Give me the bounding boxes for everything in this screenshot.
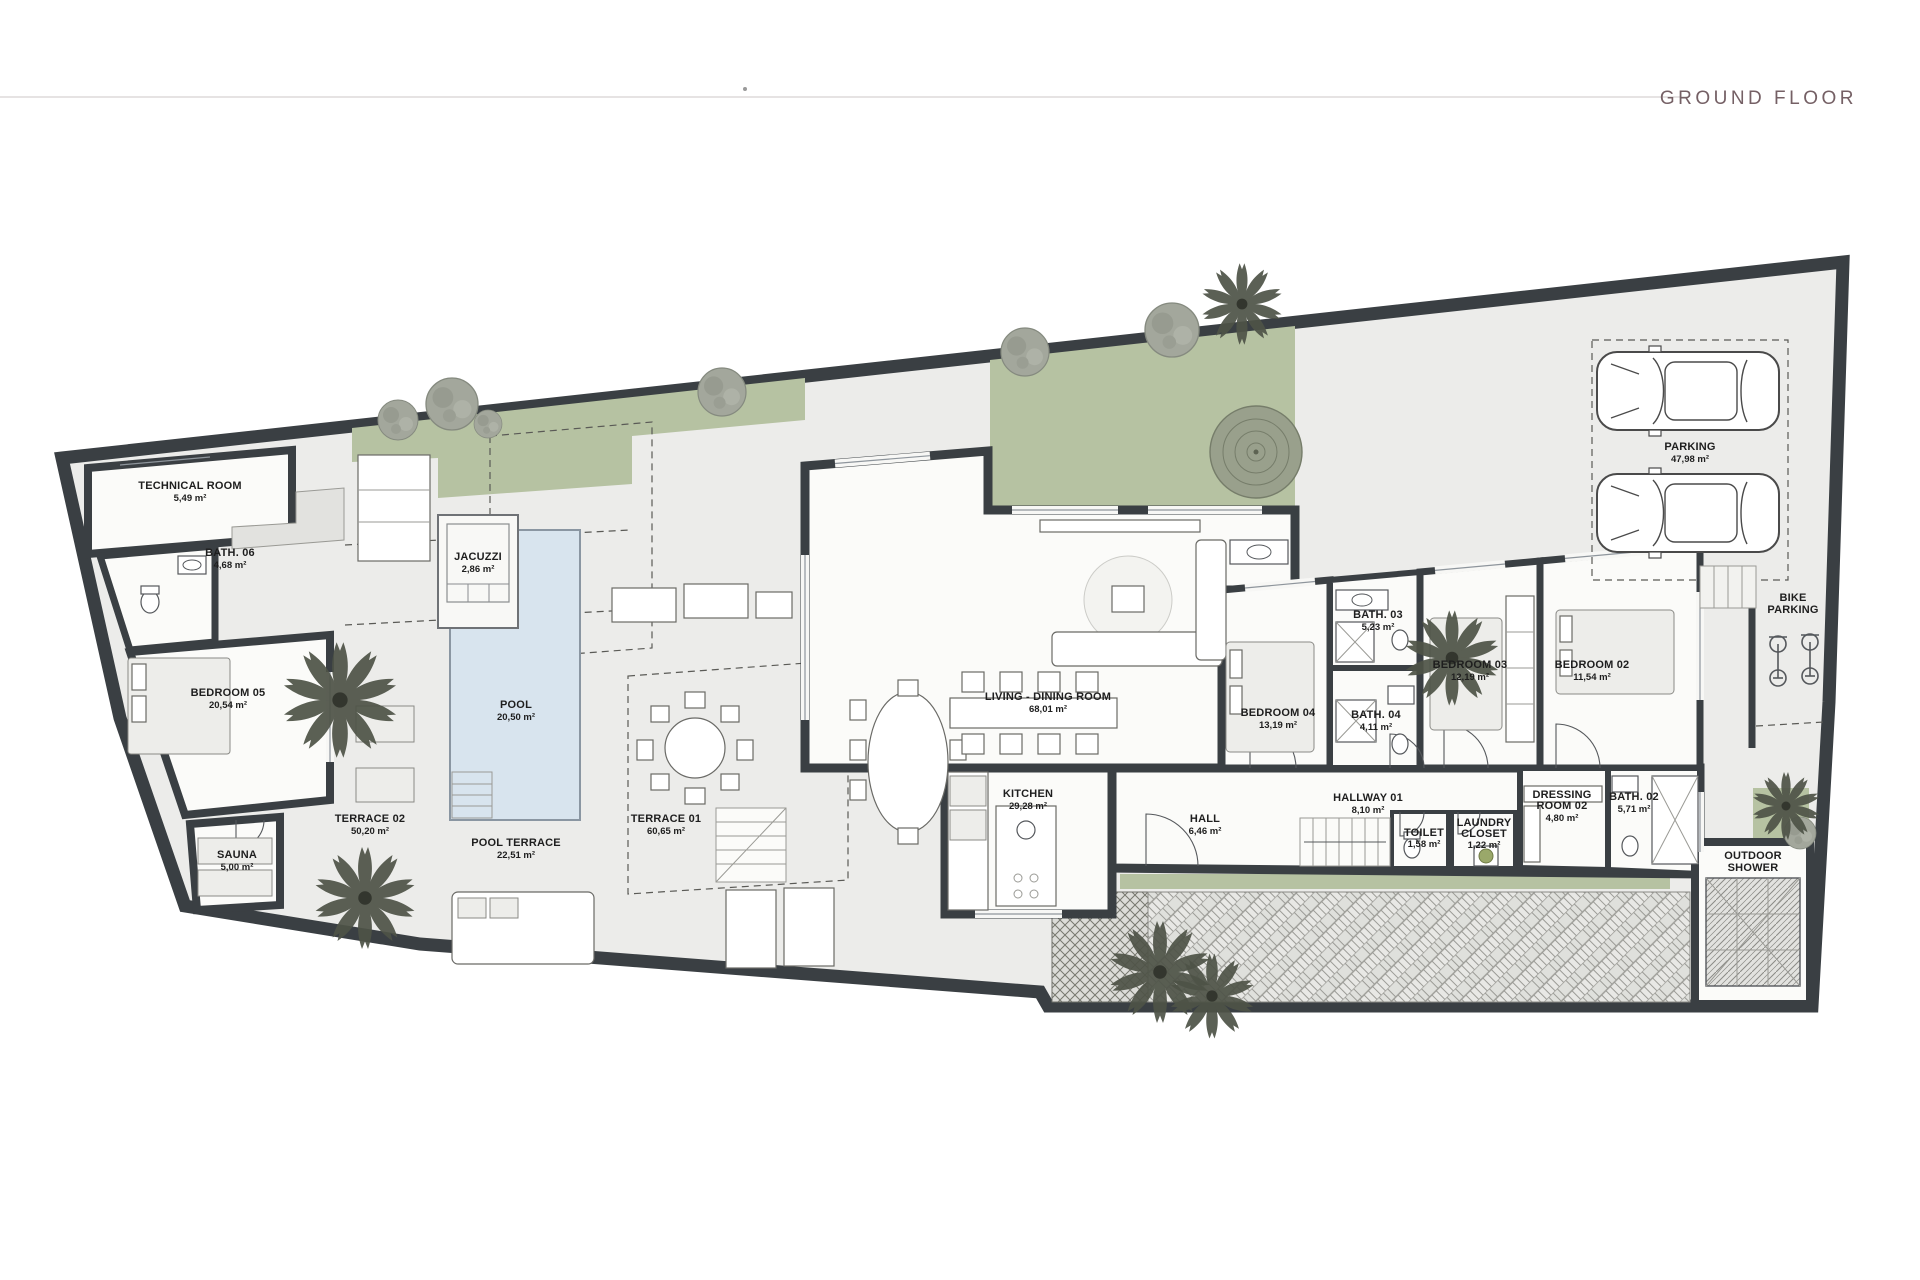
header-dot-icon: [743, 87, 747, 91]
bedroom-02-label: BEDROOM 02: [1555, 659, 1630, 671]
bush-icon: [1145, 303, 1199, 357]
pool-terrace-label: POOL TERRACE: [471, 837, 561, 849]
terrace-02-area: 50,20 m²: [351, 826, 389, 837]
bush-icon: [474, 410, 502, 438]
living-dining-area: 68,01 m²: [1029, 704, 1067, 715]
bedroom-05-area: 20,54 m²: [209, 700, 247, 711]
floor-plan-drawing: GROUND FLOOR: [0, 0, 1920, 1280]
pool-terrace-area: 22,51 m²: [497, 850, 535, 861]
jacuzzi-area: 2,86 m²: [462, 564, 495, 575]
laundry-closet-area: 1,22 m²: [1468, 840, 1501, 851]
bike-parking-label-2: PARKING: [1767, 604, 1818, 616]
living-dining-label: LIVING - DINING ROOM: [985, 691, 1111, 703]
sauna-label: SAUNA: [217, 849, 257, 861]
terrace-01-label: TERRACE 01: [631, 813, 701, 825]
hall-label: HALL: [1190, 813, 1220, 825]
bath-04-label: BATH. 04: [1351, 709, 1401, 721]
car-icon: [1597, 346, 1779, 436]
bush-icon: [1001, 328, 1049, 376]
terrace-02-label: TERRACE 02: [335, 813, 405, 825]
bedroom-05-label: BEDROOM 05: [191, 687, 266, 699]
toilet-area: 1,58 m²: [1408, 839, 1441, 850]
bath-03-area: 5,23 m²: [1362, 622, 1395, 633]
hallway-01-label: HALLWAY 01: [1333, 792, 1403, 804]
kitchen-area: 29,28 m²: [1009, 801, 1047, 812]
car-icon: [1597, 468, 1779, 558]
kitchen-label: KITCHEN: [1003, 788, 1053, 800]
hallway-01-area: 8,10 m²: [1352, 805, 1385, 816]
toilet-label: TOILET: [1404, 827, 1444, 839]
bedroom-04-label: BEDROOM 04: [1241, 707, 1316, 719]
bath-06-area: 4,68 m²: [214, 560, 247, 571]
hallway-staircase: [1300, 818, 1390, 866]
page-header: GROUND FLOOR: [0, 87, 1857, 109]
pool-area: 20,50 m²: [497, 712, 535, 723]
bath-03-label: BATH. 03: [1353, 609, 1403, 621]
bath-02-area: 5,71 m²: [1618, 804, 1651, 815]
bedroom-03-area: 12,19 m²: [1451, 672, 1489, 683]
outdoor-shower-label-2: SHOWER: [1728, 862, 1779, 874]
bedroom-02-area: 11,54 m²: [1573, 672, 1611, 683]
jacuzzi-label: JACUZZI: [454, 551, 502, 563]
bedroom-03-label: BEDROOM 03: [1433, 659, 1508, 671]
parking-area-label: 47,98 m²: [1671, 454, 1709, 465]
laundry-closet-label-2: CLOSET: [1461, 828, 1507, 840]
outdoor-shower-label-1: OUTDOOR: [1724, 850, 1782, 862]
bath-04-area: 4,11 m²: [1360, 722, 1392, 733]
terrace-staircase: [716, 808, 786, 882]
outdoor-shower-deck: [1706, 878, 1800, 986]
bath-06-label: BATH. 06: [205, 547, 255, 559]
parking-label: PARKING: [1664, 441, 1715, 453]
bike-parking-label-1: BIKE: [1779, 592, 1806, 604]
dressing-room-02-label-2: ROOM 02: [1537, 800, 1588, 812]
tree-icon: [1210, 406, 1302, 498]
pool-label: POOL: [500, 699, 532, 711]
hall-area: 6,46 m²: [1189, 826, 1222, 837]
terrace-01-area: 60,65 m²: [647, 826, 685, 837]
bedroom-04-area: 13,19 m²: [1259, 720, 1297, 731]
technical-room-label: TECHNICAL ROOM: [138, 480, 241, 492]
technical-room-area: 5,49 m²: [174, 493, 207, 504]
bush-icon: [378, 400, 418, 440]
bush-icon: [426, 378, 478, 430]
bath-02-label: BATH. 02: [1609, 791, 1659, 803]
page-title: GROUND FLOOR: [1660, 88, 1857, 109]
bush-icon: [698, 368, 746, 416]
dressing-room-02-area: 4,80 m²: [1546, 813, 1579, 824]
sauna-area: 5,00 m²: [221, 862, 254, 873]
floor-plan-page: GROUND FLOOR: [0, 0, 1920, 1280]
exterior-steps: [1700, 566, 1756, 608]
